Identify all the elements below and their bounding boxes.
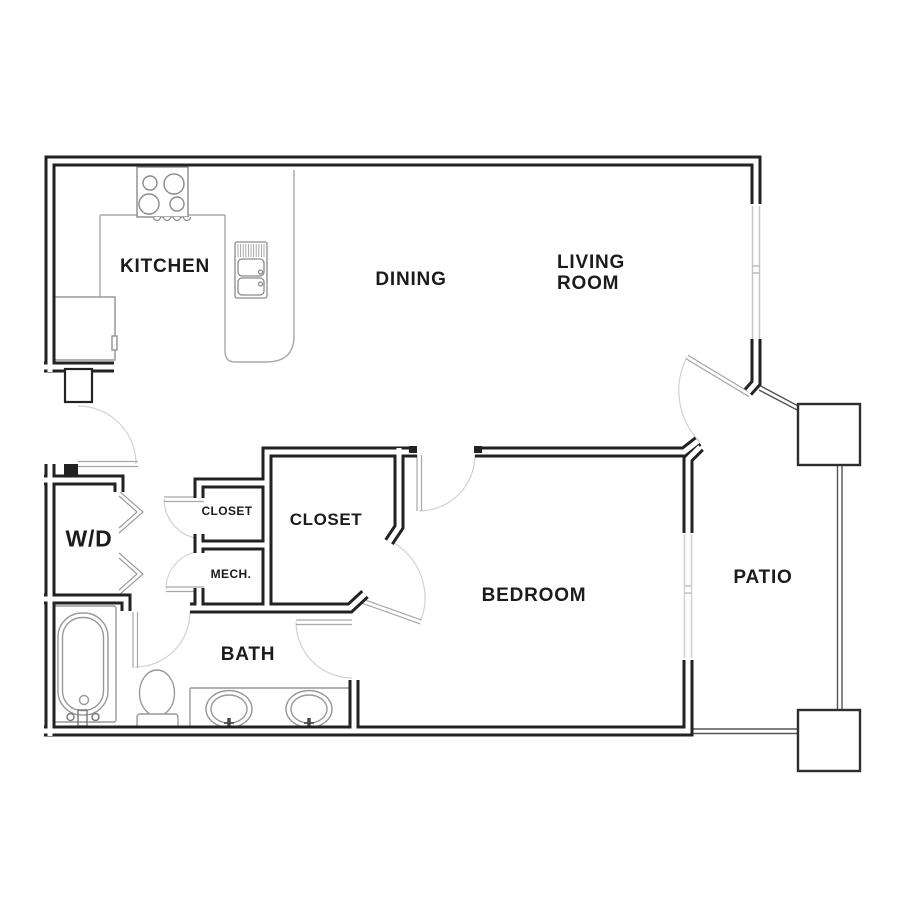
bathtub (51, 606, 116, 726)
label-bedroom: BEDROOM (482, 585, 587, 607)
label-wd: W/D (65, 526, 112, 553)
bedroom-bath-door (296, 620, 352, 678)
bath-door (133, 612, 190, 668)
vanity-sink-right (286, 691, 332, 732)
patio-pillar-bottom (798, 710, 860, 771)
wd-bifold-doors (119, 491, 143, 595)
vanity-sink-left (206, 691, 252, 732)
toilet (137, 670, 178, 734)
label-living-room-line2: ROOM (557, 273, 625, 294)
bedroom-window (684, 534, 692, 658)
label-bath: BATH (221, 644, 276, 666)
patio-pillar-top (798, 404, 860, 465)
mech-door (166, 551, 204, 592)
label-living-room-line1: LIVING (557, 252, 625, 273)
entry-door-jamb (65, 369, 92, 402)
patio-door (679, 355, 751, 442)
floor-plan: KITCHEN DINING LIVING ROOM W/D CLOSET CL… (0, 0, 900, 900)
stove (137, 167, 191, 221)
floor-plan-drawing (0, 0, 900, 900)
closet-small-door (164, 497, 204, 539)
kitchen-sink (235, 242, 267, 298)
refrigerator (53, 297, 117, 360)
entry-door (78, 406, 138, 467)
label-mech: MECH. (211, 567, 252, 581)
label-dining: DINING (375, 269, 446, 291)
vanity (190, 688, 352, 731)
walkin-closet-door (361, 543, 425, 624)
label-closet-walkin: CLOSET (290, 510, 363, 530)
label-patio: PATIO (733, 567, 792, 589)
label-kitchen: KITCHEN (120, 256, 210, 278)
living-room-window (752, 206, 760, 339)
bedroom-door (417, 455, 475, 511)
label-living-room: LIVING ROOM (557, 252, 625, 294)
label-closet-small: CLOSET (201, 504, 252, 518)
